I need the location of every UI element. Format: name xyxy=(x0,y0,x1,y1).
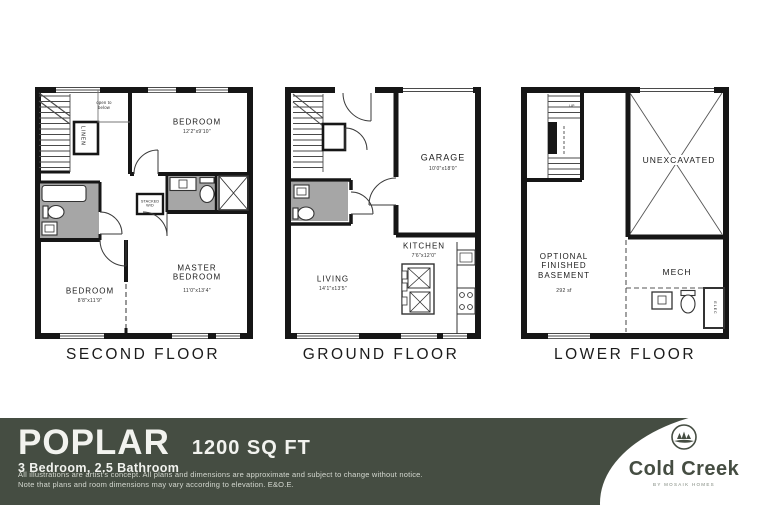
room-dims-basement: 292 sf xyxy=(556,288,571,294)
disclaimer-line2: Note that plans and room dimensions may … xyxy=(18,480,423,490)
room-label-bedroom-top: BEDROOM xyxy=(173,117,221,126)
info-banner: POPLAR1200 SQ FT 3 Bedroom, 2.5 Bathroom… xyxy=(0,418,760,505)
toilet-bowl xyxy=(48,206,64,219)
logo-brand: Cold Creek xyxy=(610,459,758,480)
stair-wall xyxy=(548,122,557,154)
lower-floor-title: LOWER FLOOR xyxy=(554,346,696,364)
second-floor-plan xyxy=(30,82,258,344)
room-label-living: LIVING xyxy=(317,274,349,283)
room-dims-living: 14'1"x13'5" xyxy=(319,286,347,292)
room-label-master: MASTER BEDROOM xyxy=(173,264,221,283)
room-label-mech: MECH xyxy=(662,267,691,277)
lower-floor-plan xyxy=(518,82,733,344)
toilet-bowl xyxy=(200,186,214,203)
toilet-bowl xyxy=(681,295,695,313)
room-label-linen: LINEN xyxy=(80,126,85,146)
room-label-up: UP xyxy=(569,104,574,108)
room-label-open-below: open to below xyxy=(96,101,111,111)
toilet-tank xyxy=(200,178,214,184)
sink xyxy=(294,185,309,198)
disclaimer-line1: All illustrations are artist's concept. … xyxy=(18,470,423,480)
floorplan-sheet: BEDROOM 12'2"x9'10" LINEN open to below … xyxy=(0,0,760,505)
room-label-bedroom-left: BEDROOM xyxy=(66,286,114,295)
stove xyxy=(457,288,475,314)
ground-floor-plan xyxy=(283,82,483,344)
room-label-basement: OPTIONAL FINISHED BASEMENT xyxy=(538,252,590,280)
room-dims-kitchen: 7'6"x12'0" xyxy=(412,253,437,259)
model-name: POPLAR xyxy=(18,423,170,462)
model-row: POPLAR1200 SQ FT xyxy=(18,425,311,460)
room-dims-master: 11'0"x13'4" xyxy=(183,288,211,294)
room-dims-garage: 10'0"x18'0" xyxy=(429,166,457,172)
hall-closet xyxy=(323,124,345,150)
cold-creek-emblem-icon xyxy=(665,423,703,453)
room-dims-bedroom-left: 8'8"x11'9" xyxy=(78,298,103,304)
toilet-bowl xyxy=(298,207,314,220)
toilet-tank xyxy=(43,206,48,218)
toilet-tank xyxy=(293,208,298,219)
room-label-garage: GARAGE xyxy=(421,153,466,164)
disclaimer: All illustrations are artist's concept. … xyxy=(18,470,423,490)
logo-tagline: BY MOSAIK HOMES xyxy=(610,482,758,487)
room-label-kitchen: KITCHEN xyxy=(401,241,447,250)
cold-creek-logo: Cold Creek BY MOSAIK HOMES xyxy=(610,423,758,487)
room-label-laundry: STACKED W/D xyxy=(141,200,159,209)
second-floor-title: SECOND FLOOR xyxy=(66,346,220,364)
ground-floor-title: GROUND FLOOR xyxy=(303,346,460,364)
room-label-elec: ELEC xyxy=(712,301,716,314)
bathtub xyxy=(42,186,86,202)
sink xyxy=(652,292,672,309)
room-dims-bedroom-top: 12'2"x9'10" xyxy=(183,129,211,135)
vanity xyxy=(170,178,196,191)
room-label-unexcavated: UNEXCAVATED xyxy=(641,155,718,165)
linen-closet xyxy=(74,122,98,154)
sink xyxy=(42,222,57,235)
model-area: 1200 SQ FT xyxy=(192,437,311,459)
